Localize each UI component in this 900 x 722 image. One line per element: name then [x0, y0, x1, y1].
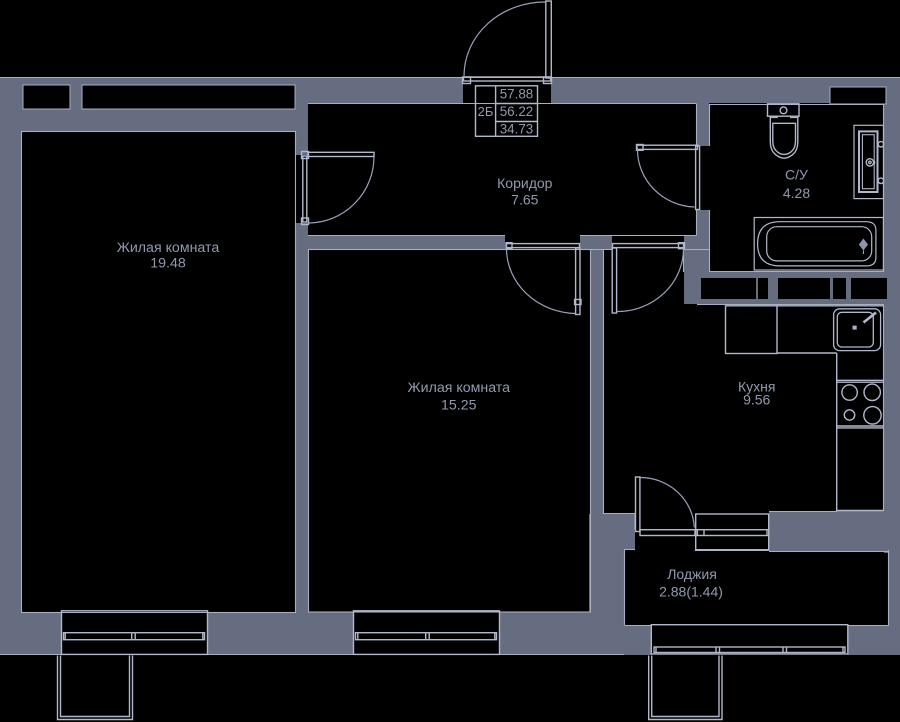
svg-text:С/У: С/У: [785, 167, 808, 183]
svg-text:Жилая комната: Жилая комната: [117, 240, 220, 256]
svg-text:15.25: 15.25: [441, 397, 477, 413]
svg-text:Лоджия: Лоджия: [667, 566, 717, 582]
svg-text:34.73: 34.73: [500, 121, 534, 136]
svg-text:Жилая комната: Жилая комната: [408, 380, 511, 396]
svg-text:19.48: 19.48: [150, 256, 186, 272]
svg-text:9.56: 9.56: [743, 392, 770, 408]
svg-text:57.88: 57.88: [500, 87, 534, 102]
svg-text:Коридор: Коридор: [497, 175, 553, 191]
svg-text:56.22: 56.22: [500, 104, 534, 119]
svg-text:2Б: 2Б: [478, 104, 494, 119]
svg-text:7.65: 7.65: [511, 192, 538, 208]
svg-text:4.28: 4.28: [783, 185, 810, 201]
svg-text:2.88(1.44): 2.88(1.44): [659, 583, 723, 599]
